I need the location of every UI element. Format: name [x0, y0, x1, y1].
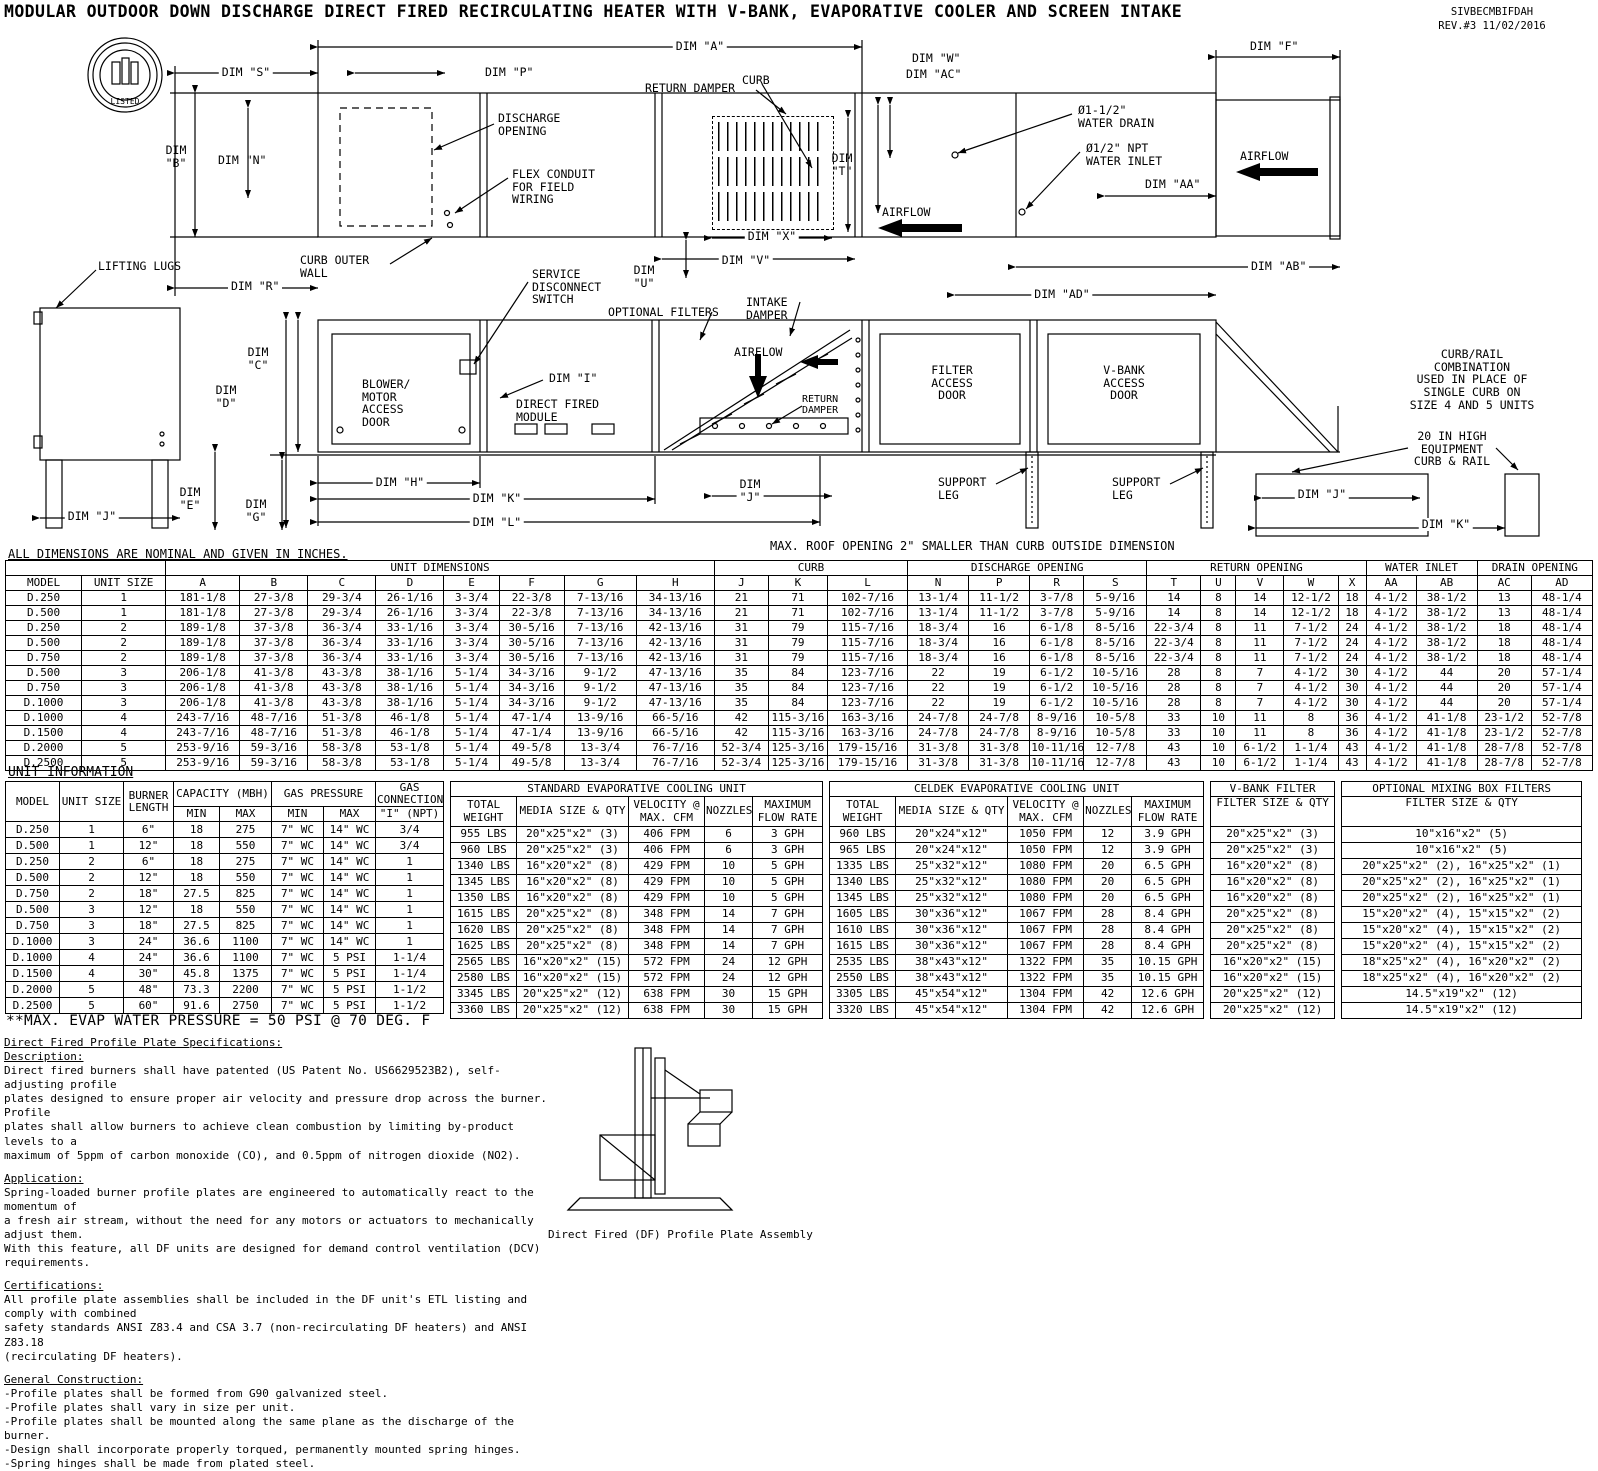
table-cell: D.500 — [6, 838, 60, 854]
table-cell: 30"x36"x12" — [896, 923, 1008, 939]
table-cell: 1 — [60, 822, 124, 838]
table-cell: 3-3/4 — [444, 621, 499, 636]
table-cell: 16"x20"x2" (8) — [1211, 859, 1335, 875]
table-cell: 1620 LBS — [451, 923, 517, 939]
column-header: P — [969, 576, 1030, 591]
table-row: D.500112"185507" WC14" WC3/4 — [6, 838, 444, 854]
table-cell: 12-1/2 — [1284, 606, 1338, 621]
table-cell: 5-1/4 — [444, 666, 499, 681]
table-row: 1615 LBS30"x36"x12"1067 FPM288.4 GPH — [830, 939, 1204, 955]
table-cell: 48-1/4 — [1531, 621, 1592, 636]
table-cell: 13-1/4 — [908, 591, 969, 606]
table-cell: 36-3/4 — [308, 621, 376, 636]
col-gas-min: MIN — [272, 807, 324, 822]
table-cell: 8 — [1284, 711, 1338, 726]
table-cell: 52-3/4 — [714, 756, 768, 771]
table-cell: 7" WC — [272, 854, 324, 870]
table-cell: 20"x25"x2" (8) — [517, 907, 629, 923]
table-cell: 572 FPM — [629, 971, 705, 987]
dim-w-label: DIM "W" — [912, 52, 960, 65]
table-cell: 28 — [1147, 681, 1201, 696]
table-cell: 18 — [174, 902, 220, 918]
col-gas-max: MAX — [324, 807, 376, 822]
column-header: AC — [1477, 576, 1531, 591]
table-cell: 31 — [714, 651, 768, 666]
table-cell: 1345 LBS — [830, 891, 896, 907]
table-cell: 163-3/16 — [827, 711, 907, 726]
df-module-label: DIRECT FIRED MODULE — [516, 398, 599, 423]
table-cell: 5-1/4 — [444, 696, 499, 711]
table-cell: 10 — [705, 875, 753, 891]
table-cell: 41-1/8 — [1416, 726, 1477, 741]
table-cell: 25"x32"x12" — [896, 891, 1008, 907]
table-cell: 36 — [1338, 711, 1366, 726]
table-cell: 41-1/8 — [1416, 756, 1477, 771]
table-cell: 7-13/16 — [564, 591, 636, 606]
table-cell: 1050 FPM — [1008, 827, 1084, 843]
table-cell: 8-5/16 — [1084, 621, 1147, 636]
table-cell: 10 — [1201, 711, 1236, 726]
table-cell: 15"x20"x2" (4), 15"x15"x2" (2) — [1342, 923, 1582, 939]
application-heading: Application: — [4, 1172, 554, 1186]
table-cell: 11 — [1236, 651, 1284, 666]
table-row: D.500312"185507" WC14" WC1 — [6, 902, 444, 918]
col-gas-connection: GAS CONNECTION — [376, 782, 444, 807]
table-cell: 43 — [1147, 756, 1201, 771]
table-cell: 60" — [124, 998, 174, 1014]
table-cell: 1 — [82, 606, 166, 621]
table-cell: 30 — [1338, 696, 1366, 711]
dimensions-note: ALL DIMENSIONS ARE NOMINAL AND GIVEN IN … — [8, 547, 348, 561]
table-cell: D.2500 — [6, 998, 60, 1014]
table-cell: 47-1/4 — [499, 711, 564, 726]
table-cell: 23-1/2 — [1477, 711, 1531, 726]
table-cell: 14" WC — [324, 902, 376, 918]
table-cell: 8.4 GPH — [1132, 907, 1204, 923]
table-cell: 28 — [1084, 923, 1132, 939]
table-cell: 8-5/16 — [1084, 651, 1147, 666]
table-cell: D.500 — [6, 606, 82, 621]
description-text: Direct fired burners shall have patented… — [4, 1064, 554, 1163]
dim-l-label: DIM "L" — [470, 516, 524, 529]
profile-plate-specifications: Direct Fired Profile Plate Specification… — [4, 1036, 554, 1471]
table-cell: 22-3/4 — [1147, 621, 1201, 636]
table-cell: 35 — [1084, 971, 1132, 987]
table-cell: 45"x54"x12" — [896, 1003, 1008, 1019]
table-row: 1345 LBS16"x20"x2" (8)429 FPM105 GPH — [451, 875, 823, 891]
table-cell: 84 — [768, 696, 827, 711]
table-row: 15"x20"x2" (4), 15"x15"x2" (2) — [1342, 939, 1582, 955]
table-cell: 38"x43"x12" — [896, 971, 1008, 987]
table-cell: 12 GPH — [753, 955, 823, 971]
table-row: D.25016"182757" WC14" WC3/4 — [6, 822, 444, 838]
table-cell: 12-1/2 — [1284, 591, 1338, 606]
col-nozzles: NOZZLES — [705, 797, 753, 827]
table-cell: D.250 — [6, 854, 60, 870]
table-cell: 8 — [1201, 636, 1236, 651]
table-cell: 275 — [220, 854, 272, 870]
certifications-text: All profile plate assemblies shall be in… — [4, 1293, 554, 1363]
table-cell: 115-3/16 — [768, 711, 827, 726]
table-cell: D.750 — [6, 918, 60, 934]
column-header: U — [1201, 576, 1236, 591]
table-cell: 59-3/16 — [240, 741, 308, 756]
table-cell: 14 — [705, 907, 753, 923]
table-cell: 28 — [1147, 696, 1201, 711]
table-cell: 31-3/8 — [908, 741, 969, 756]
table-cell: 3-3/4 — [444, 636, 499, 651]
table-cell: 41-1/8 — [1416, 711, 1477, 726]
table-cell: 3 — [82, 696, 166, 711]
column-header: V — [1236, 576, 1284, 591]
table-row: 2565 LBS16"x20"x2" (15)572 FPM2412 GPH — [451, 955, 823, 971]
table-cell: 179-15/16 — [827, 756, 907, 771]
table-cell: 3.9 GPH — [1132, 827, 1204, 843]
table-cell: 36-3/4 — [308, 636, 376, 651]
table-cell: 43-3/8 — [308, 696, 376, 711]
table-row: 20"x25"x2" (12) — [1211, 987, 1335, 1003]
table-cell: 20 — [1084, 875, 1132, 891]
table-cell: 429 FPM — [629, 875, 705, 891]
table-cell: 12 — [1084, 827, 1132, 843]
table-cell: D.250 — [6, 591, 82, 606]
table-cell: 8 — [1201, 621, 1236, 636]
table-cell: 206-1/8 — [166, 696, 240, 711]
table-cell: 18-3/4 — [908, 621, 969, 636]
table-cell: 44 — [1416, 666, 1477, 681]
table-cell: 29-3/4 — [308, 591, 376, 606]
table-row: 10"x16"x2" (5) — [1342, 843, 1582, 859]
table-row: 1340 LBS16"x20"x2" (8)429 FPM105 GPH — [451, 859, 823, 875]
dim-v-label: DIM "V" — [719, 254, 773, 267]
table-cell: 47-13/16 — [636, 681, 714, 696]
table-cell: 429 FPM — [629, 891, 705, 907]
table-cell: 6-1/2 — [1030, 696, 1084, 711]
table-row: 20"x25"x2" (12) — [1211, 1003, 1335, 1019]
col-total-weight: TOTAL WEIGHT — [451, 797, 517, 827]
table-row: D.1000424"36.611007" WC5 PSI1-1/4 — [6, 950, 444, 966]
table-cell: 30"x36"x12" — [896, 939, 1008, 955]
table-cell: 13-9/16 — [564, 726, 636, 741]
table-cell: 59-3/16 — [240, 756, 308, 771]
table-cell: 34-13/16 — [636, 591, 714, 606]
assembly-caption: Direct Fired (DF) Profile Plate Assembly — [548, 1228, 813, 1241]
table-cell: 4-1/2 — [1366, 651, 1416, 666]
table-cell: 15"x20"x2" (4), 15"x15"x2" (2) — [1342, 907, 1582, 923]
airflow-elev-label: AIRFLOW — [734, 346, 782, 359]
table-cell: 1-1/2 — [376, 982, 444, 998]
table-cell: 20"x25"x2" (8) — [1211, 923, 1335, 939]
column-header: L — [827, 576, 907, 591]
table-cell: 3345 LBS — [451, 987, 517, 1003]
table-cell: 73.3 — [174, 982, 220, 998]
table-cell: 5 — [82, 741, 166, 756]
table-cell: 25"x32"x12" — [896, 859, 1008, 875]
table-cell: 10"x16"x2" (5) — [1342, 827, 1582, 843]
optional-filters-label: OPTIONAL FILTERS — [608, 306, 719, 319]
table-row: D.2500560"91.627507" WC5 PSI1-1/2 — [6, 998, 444, 1014]
dim-ac-label: DIM "AC" — [906, 68, 961, 81]
table-cell: 102-7/16 — [827, 591, 907, 606]
table-cell: 15 GPH — [753, 987, 823, 1003]
table-row: 16"x20"x2" (8) — [1211, 891, 1335, 907]
dim-g-label: DIM "G" — [246, 498, 267, 523]
table-row: 1615 LBS20"x25"x2" (8)348 FPM147 GPH — [451, 907, 823, 923]
table-cell: 7" WC — [272, 982, 324, 998]
table-cell: 24 — [1338, 651, 1366, 666]
support-leg-2-label: SUPPORT LEG — [1112, 476, 1160, 501]
table-cell: 1-1/4 — [376, 966, 444, 982]
table-row: 1340 LBS25"x32"x12"1080 FPM206.5 GPH — [830, 875, 1204, 891]
col-media-size: MEDIA SIZE & QTY — [896, 797, 1008, 827]
table-cell: 31 — [714, 621, 768, 636]
table-row: D.7503206-1/841-3/843-3/838-1/165-1/434-… — [6, 681, 1593, 696]
standard-evap-title: STANDARD EVAPORATIVE COOLING UNIT — [451, 782, 823, 797]
table-cell: 10 — [705, 859, 753, 875]
table-cell: 1-1/4 — [1284, 756, 1338, 771]
table-cell: 4 — [60, 950, 124, 966]
table-cell: 18 — [174, 838, 220, 854]
table-row: D.1500430"45.813757" WC5 PSI1-1/4 — [6, 966, 444, 982]
table-cell: 1050 FPM — [1008, 843, 1084, 859]
table-cell: 20 — [1477, 666, 1531, 681]
table-cell: 14" WC — [324, 918, 376, 934]
table-cell: 43-3/8 — [308, 681, 376, 696]
table-cell: 1 — [376, 854, 444, 870]
table-cell: 30"x36"x12" — [896, 907, 1008, 923]
return-damper-label: RETURN DAMPER — [645, 82, 735, 95]
table-cell: 42 — [1084, 987, 1132, 1003]
table-cell: 7-13/16 — [564, 606, 636, 621]
table-row: 16"x20"x2" (8) — [1211, 875, 1335, 891]
table-cell: 48-1/4 — [1531, 591, 1592, 606]
table-row: 960 LBS20"x25"x2" (3)406 FPM63 GPH — [451, 843, 823, 859]
table-cell: 26-1/16 — [376, 591, 444, 606]
table-cell: 71 — [768, 606, 827, 621]
table-cell: 2200 — [220, 982, 272, 998]
table-cell: 23-1/2 — [1477, 726, 1531, 741]
table-cell: 49-5/8 — [499, 741, 564, 756]
table-row: D.750218"27.58257" WC14" WC1 — [6, 886, 444, 902]
page-title: MODULAR OUTDOOR DOWN DISCHARGE DIRECT FI… — [4, 2, 1182, 21]
table-cell: 1 — [376, 886, 444, 902]
table-cell: 22-3/4 — [1147, 636, 1201, 651]
mixing-box-filters-table: OPTIONAL MIXING BOX FILTERS FILTER SIZE … — [1341, 781, 1582, 1019]
table-cell: 20"x25"x2" (3) — [1211, 843, 1335, 859]
table-cell: 10-5/8 — [1084, 711, 1147, 726]
unit-dimensions-table: UNIT DIMENSIONS CURB DISCHARGE OPENING R… — [5, 560, 1593, 771]
group-unit-dimensions: UNIT DIMENSIONS — [166, 561, 715, 576]
table-cell: 27-3/8 — [240, 606, 308, 621]
table-cell: 4 — [60, 966, 124, 982]
table-row: 10"x16"x2" (5) — [1342, 827, 1582, 843]
table-cell: 16 — [969, 636, 1030, 651]
table-cell: 7" WC — [272, 966, 324, 982]
construction-text: -Profile plates shall be formed from G90… — [4, 1387, 554, 1471]
table-cell: 20"x25"x2" (8) — [1211, 907, 1335, 923]
col-capacity-min: MIN — [174, 807, 220, 822]
table-cell: D.1000 — [6, 711, 82, 726]
table-cell: 4 — [82, 711, 166, 726]
table-cell: 16"x20"x2" (8) — [1211, 891, 1335, 907]
table-cell: 6.5 GPH — [1132, 875, 1204, 891]
table-cell: 5 GPH — [753, 859, 823, 875]
table-cell: 6-1/8 — [1030, 651, 1084, 666]
table-cell: 44 — [1416, 696, 1477, 711]
table-cell: 7" WC — [272, 998, 324, 1014]
table-cell: 20"x24"x12" — [896, 827, 1008, 843]
table-cell: 1375 — [220, 966, 272, 982]
table-cell: 43 — [1147, 741, 1201, 756]
table-cell: 84 — [768, 666, 827, 681]
table-cell: 5-9/16 — [1084, 606, 1147, 621]
table-cell: 825 — [220, 918, 272, 934]
col-capacity-max: MAX — [220, 807, 272, 822]
dim-aa-label: DIM "AA" — [1142, 178, 1203, 191]
table-row: 955 LBS20"x25"x2" (3)406 FPM63 GPH — [451, 827, 823, 843]
table-cell: 52-7/8 — [1531, 756, 1592, 771]
table-cell: 34-3/16 — [499, 696, 564, 711]
table-cell: 1100 — [220, 934, 272, 950]
table-cell: 36.6 — [174, 934, 220, 950]
table-row: 1350 LBS16"x20"x2" (8)429 FPM105 GPH — [451, 891, 823, 907]
curb-rail-note: CURB/RAIL COMBINATION USED IN PLACE OF S… — [1410, 348, 1535, 411]
table-cell: 5 PSI — [324, 966, 376, 982]
table-cell: 18"x25"x2" (4), 16"x20"x2" (2) — [1342, 971, 1582, 987]
table-cell: 45.8 — [174, 966, 220, 982]
table-cell: 22 — [908, 681, 969, 696]
table-cell: 960 LBS — [830, 827, 896, 843]
table-cell: 14 — [705, 923, 753, 939]
return-damper-grid-hatch — [718, 192, 826, 221]
table-cell: 8 — [1201, 681, 1236, 696]
table-cell: 14" WC — [324, 934, 376, 950]
table-cell: 3 — [82, 666, 166, 681]
table-cell: 6-1/2 — [1236, 756, 1284, 771]
col-velocity: VELOCITY @ MAX. CFM — [629, 797, 705, 827]
table-cell: 18-3/4 — [908, 636, 969, 651]
table-cell: 71 — [768, 591, 827, 606]
column-header: N — [908, 576, 969, 591]
table-cell: 38-1/2 — [1416, 621, 1477, 636]
airflow-right-label: AIRFLOW — [1240, 150, 1288, 163]
table-cell: 14 — [1147, 591, 1201, 606]
column-header-row: MODEL UNIT SIZE ABCDEFGHJKLNPRSTUVWXAAAB… — [6, 576, 1593, 591]
table-cell: 20"x24"x12" — [896, 843, 1008, 859]
table-row: D.25026"182757" WC14" WC1 — [6, 854, 444, 870]
table-cell: 16"x20"x2" (8) — [1211, 875, 1335, 891]
table-row: D.2502189-1/837-3/836-3/433-1/163-3/430-… — [6, 621, 1593, 636]
table-cell: 960 LBS — [451, 843, 517, 859]
dim-k-mid-label: DIM "K" — [470, 492, 524, 505]
table-cell: 20"x25"x2" (12) — [517, 987, 629, 1003]
table-row: 20"x25"x2" (8) — [1211, 939, 1335, 955]
table-cell: 10-5/8 — [1084, 726, 1147, 741]
table-cell: 115-7/16 — [827, 621, 907, 636]
table-cell: 66-5/16 — [636, 726, 714, 741]
table-cell: 36.6 — [174, 950, 220, 966]
table-cell: 5-9/16 — [1084, 591, 1147, 606]
table-row: 1605 LBS30"x36"x12"1067 FPM288.4 GPH — [830, 907, 1204, 923]
table-cell: 24 — [705, 955, 753, 971]
column-header: W — [1284, 576, 1338, 591]
table-cell: 1-1/2 — [376, 998, 444, 1014]
lifting-lugs-label: LIFTING LUGS — [98, 260, 181, 273]
table-cell: 31-3/8 — [908, 756, 969, 771]
table-cell: 14" WC — [324, 886, 376, 902]
table-row: D.25005253-9/1659-3/1658-3/853-1/85-1/44… — [6, 756, 1593, 771]
table-cell: 1 — [376, 870, 444, 886]
table-cell: 27-3/8 — [240, 591, 308, 606]
table-cell: 51-3/8 — [308, 726, 376, 741]
table-cell: 1610 LBS — [830, 923, 896, 939]
table-cell: 18 — [174, 854, 220, 870]
table-cell: 12.6 GPH — [1132, 1003, 1204, 1019]
table-cell: 1345 LBS — [451, 875, 517, 891]
table-cell: 1080 FPM — [1008, 859, 1084, 875]
table-cell: 79 — [768, 636, 827, 651]
table-cell: 4 — [82, 726, 166, 741]
dim-j-mid-label: DIM "J" — [737, 478, 764, 503]
table-cell: 6.5 GPH — [1132, 891, 1204, 907]
table-cell: 24 — [705, 971, 753, 987]
table-row: 1335 LBS25"x32"x12"1080 FPM206.5 GPH — [830, 859, 1204, 875]
table-cell: 24" — [124, 934, 174, 950]
table-row: 15"x20"x2" (4), 15"x15"x2" (2) — [1342, 907, 1582, 923]
table-cell: 7 GPH — [753, 923, 823, 939]
table-cell: D.1500 — [6, 966, 60, 982]
technical-drawing: LISTEDDIM "A"DIM "S"DIM "P"RETURN DAMPER… — [0, 26, 1598, 538]
col-unit-size: UNIT SIZE — [60, 782, 124, 822]
col-model: MODEL — [6, 576, 82, 591]
water-inlet-label: Ø1/2" NPT WATER INLET — [1086, 142, 1162, 167]
table-cell: 29-3/4 — [308, 606, 376, 621]
table-cell: 181-1/8 — [166, 591, 240, 606]
table-cell: 6-1/8 — [1030, 621, 1084, 636]
table-cell: 79 — [768, 651, 827, 666]
table-cell: 25"x32"x12" — [896, 875, 1008, 891]
table-cell: 4-1/2 — [1366, 681, 1416, 696]
column-header: X — [1338, 576, 1366, 591]
table-cell: 27.5 — [174, 886, 220, 902]
table-cell: 42 — [714, 726, 768, 741]
table-cell: 123-7/16 — [827, 666, 907, 681]
group-return-opening: RETURN OPENING — [1147, 561, 1366, 576]
table-cell: 8.4 GPH — [1132, 939, 1204, 955]
table-cell: 4-1/2 — [1366, 666, 1416, 681]
table-cell: 20"x25"x2" (12) — [517, 1003, 629, 1019]
filter-door-label: FILTER ACCESS DOOR — [931, 364, 973, 402]
table-row: 16"x20"x2" (15) — [1211, 971, 1335, 987]
table-cell: 6 — [705, 843, 753, 859]
column-header: C — [308, 576, 376, 591]
table-cell: D.1000 — [6, 934, 60, 950]
table-cell: D.250 — [6, 822, 60, 838]
table-cell: 10.15 GPH — [1132, 971, 1204, 987]
table-cell: 6" — [124, 822, 174, 838]
table-cell: 30 — [705, 1003, 753, 1019]
table-cell: 14 — [1147, 606, 1201, 621]
table-cell: 30 — [1338, 681, 1366, 696]
table-cell: 20"x25"x2" (12) — [1211, 987, 1335, 1003]
table-cell: 58-3/8 — [308, 756, 376, 771]
table-cell: 10 — [1201, 741, 1236, 756]
table-cell: 20 — [1477, 696, 1531, 711]
table-cell: 15"x20"x2" (4), 15"x15"x2" (2) — [1342, 939, 1582, 955]
table-cell: 2 — [82, 621, 166, 636]
table-cell: 5-1/4 — [444, 741, 499, 756]
table-cell: 253-9/16 — [166, 741, 240, 756]
